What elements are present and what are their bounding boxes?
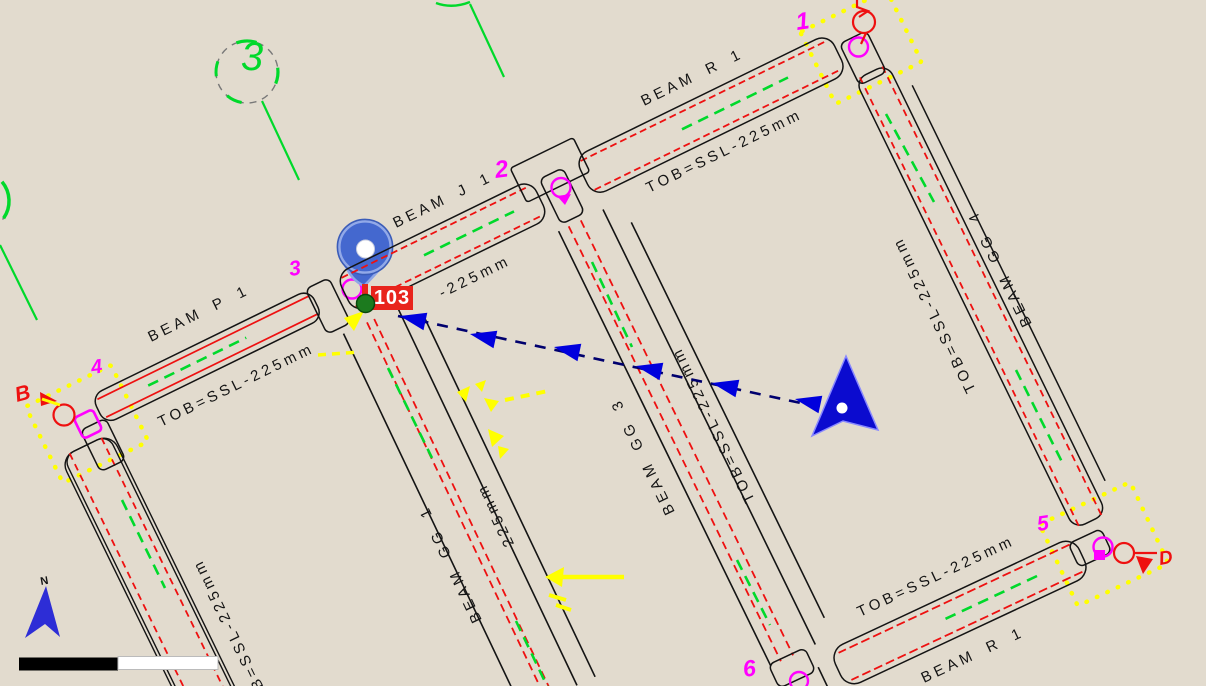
svg-text:3: 3 — [241, 35, 263, 79]
svg-text:103: 103 — [374, 287, 410, 309]
